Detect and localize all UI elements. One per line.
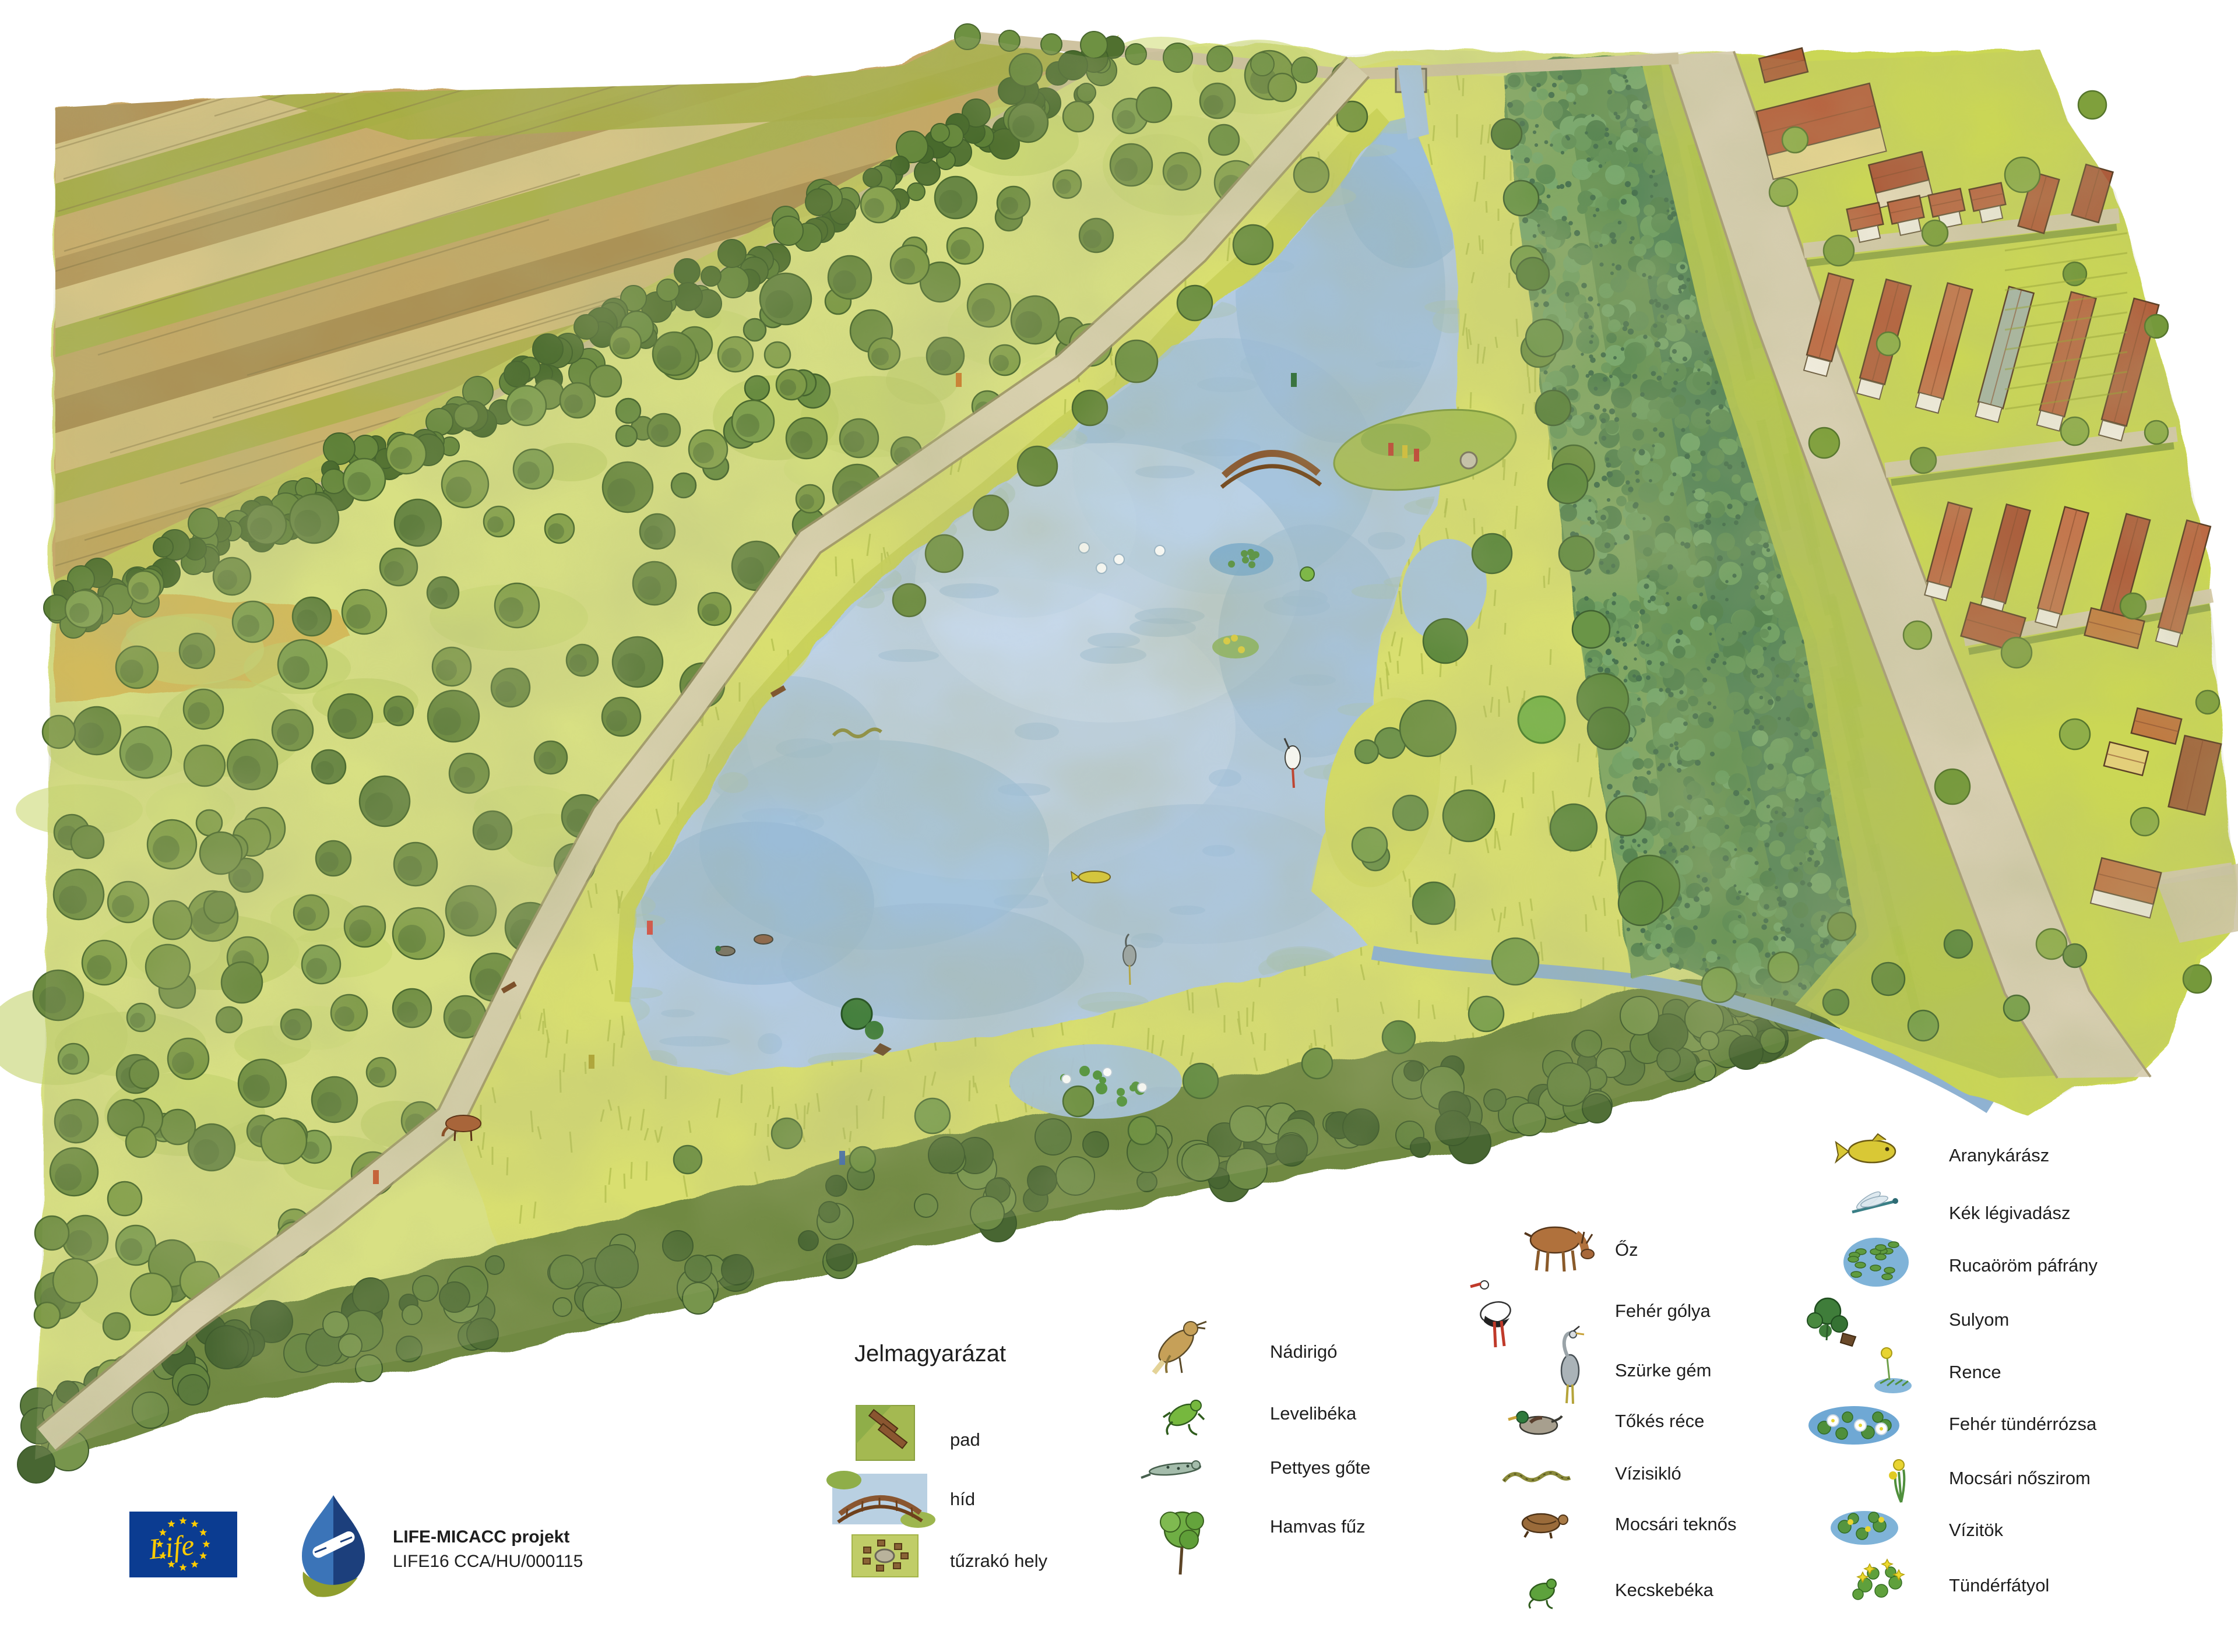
svg-text:Kecskebéka: Kecskebéka (1615, 1580, 1714, 1600)
svg-text:Tündérfátyol: Tündérfátyol (1949, 1575, 2049, 1595)
svg-text:Sulyom: Sulyom (1949, 1309, 2009, 1330)
svg-text:Vízisikló: Vízisikló (1615, 1463, 1681, 1484)
svg-text:Rence: Rence (1949, 1362, 2001, 1382)
svg-text:LIFE-MICACC projekt: LIFE-MICACC projekt (393, 1527, 569, 1547)
svg-text:LIFE16 CCA/HU/000115: LIFE16 CCA/HU/000115 (393, 1552, 583, 1571)
svg-text:Vízitök: Vízitök (1949, 1520, 2004, 1540)
svg-text:Aranykárász: Aranykárász (1949, 1145, 2049, 1165)
svg-text:Mocsári teknős: Mocsári teknős (1615, 1514, 1736, 1534)
svg-text:tűzrakó hely: tűzrakó hely (950, 1551, 1048, 1571)
svg-text:Hamvas fűz: Hamvas fűz (1270, 1516, 1366, 1537)
svg-text:híd: híd (950, 1489, 975, 1509)
svg-text:Őz: Őz (1615, 1239, 1638, 1260)
svg-text:Rucaöröm páfrány: Rucaöröm páfrány (1949, 1255, 2098, 1276)
svg-text:Life: Life (147, 1528, 196, 1566)
svg-text:Mocsári nőszirom: Mocsári nőszirom (1949, 1468, 2091, 1488)
svg-text:Jelmagyarázat: Jelmagyarázat (854, 1341, 1006, 1366)
svg-text:Fehér gólya: Fehér gólya (1615, 1301, 1711, 1321)
svg-text:Kék légivadász: Kék légivadász (1949, 1203, 2071, 1223)
svg-text:Fehér tündérrózsa: Fehér tündérrózsa (1949, 1414, 2097, 1434)
svg-text:Levelibéka: Levelibéka (1270, 1403, 1357, 1424)
svg-text:Pettyes gőte: Pettyes gőte (1270, 1457, 1370, 1478)
svg-text:Szürke gém: Szürke gém (1615, 1360, 1711, 1380)
svg-text:pad: pad (950, 1429, 980, 1450)
svg-text:Tőkés réce: Tőkés réce (1615, 1411, 1704, 1431)
svg-text:Nádirigó: Nádirigó (1270, 1341, 1337, 1362)
